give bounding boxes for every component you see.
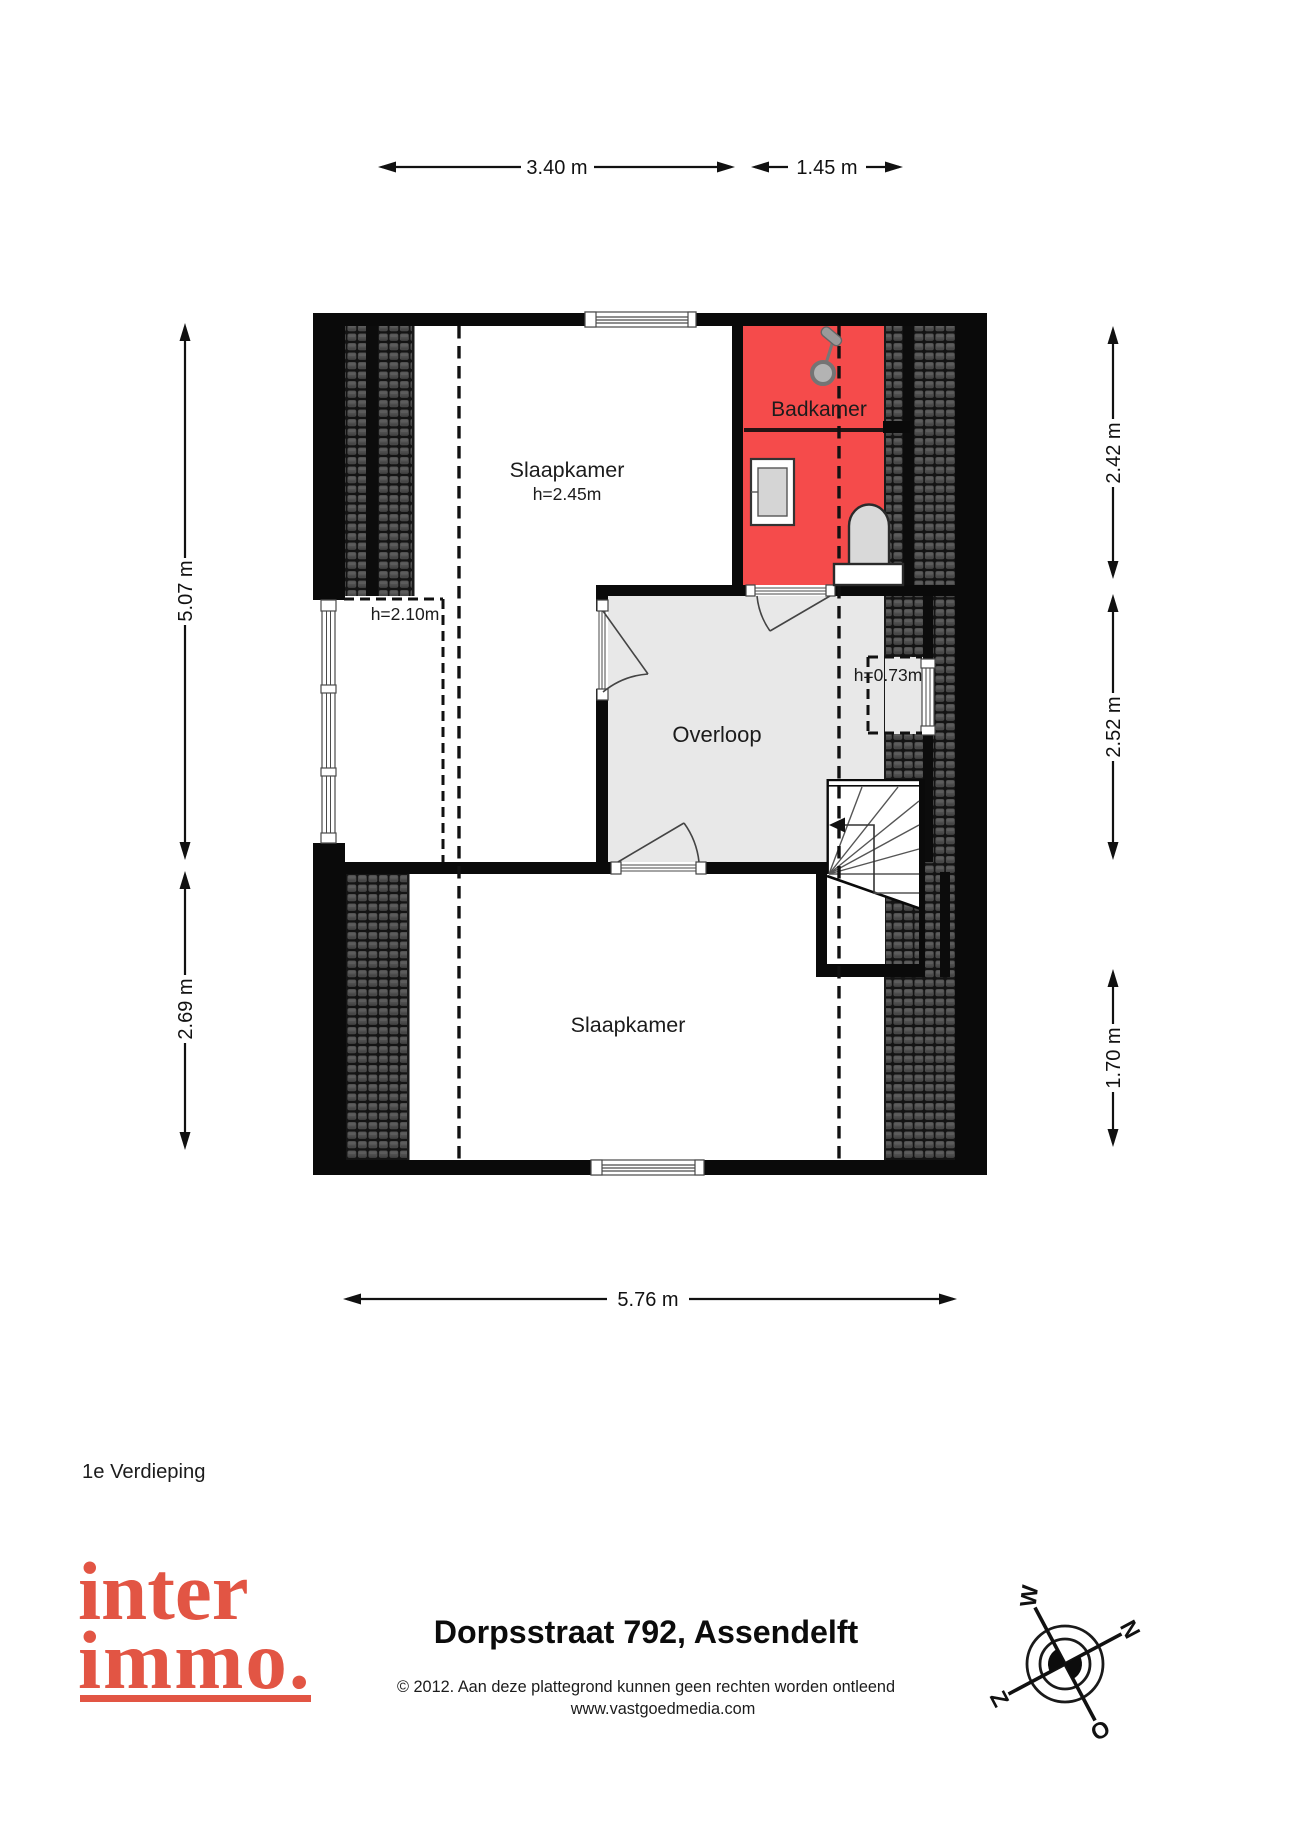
svg-text:© 2012. Aan deze plattegrond k: © 2012. Aan deze plattegrond kunnen geen…: [397, 1678, 895, 1696]
svg-text:2.42 m: 2.42 m: [1103, 422, 1125, 483]
svg-text:Z: Z: [985, 1686, 1015, 1711]
svg-text:1.70 m: 1.70 m: [1103, 1027, 1125, 1088]
svg-text:h=0.73m: h=0.73m: [854, 665, 923, 685]
svg-text:Slaapkamer: Slaapkamer: [571, 1013, 686, 1037]
svg-text:3.40 m: 3.40 m: [526, 157, 587, 179]
svg-text:2.52 m: 2.52 m: [1103, 696, 1125, 757]
svg-text:O: O: [1086, 1715, 1114, 1746]
svg-text:www.vastgoedmedia.com: www.vastgoedmedia.com: [570, 1700, 756, 1718]
svg-text:h=2.10m: h=2.10m: [371, 604, 440, 624]
svg-text:immo.: immo.: [78, 1614, 312, 1706]
svg-text:N: N: [1115, 1616, 1146, 1643]
svg-text:W: W: [1015, 1583, 1043, 1608]
svg-text:Dorpsstraat 792, Assendelft: Dorpsstraat 792, Assendelft: [434, 1614, 859, 1650]
svg-text:2.69 m: 2.69 m: [175, 978, 197, 1039]
svg-text:5.07 m: 5.07 m: [175, 560, 197, 621]
svg-text:1e Verdieping: 1e Verdieping: [82, 1461, 205, 1483]
svg-text:Badkamer: Badkamer: [771, 398, 867, 421]
svg-text:1.45 m: 1.45 m: [796, 157, 857, 179]
svg-text:Overloop: Overloop: [672, 722, 761, 747]
svg-text:Slaapkamer: Slaapkamer: [510, 458, 625, 482]
svg-text:h=2.45m: h=2.45m: [533, 484, 602, 504]
svg-text:5.76 m: 5.76 m: [617, 1289, 678, 1311]
